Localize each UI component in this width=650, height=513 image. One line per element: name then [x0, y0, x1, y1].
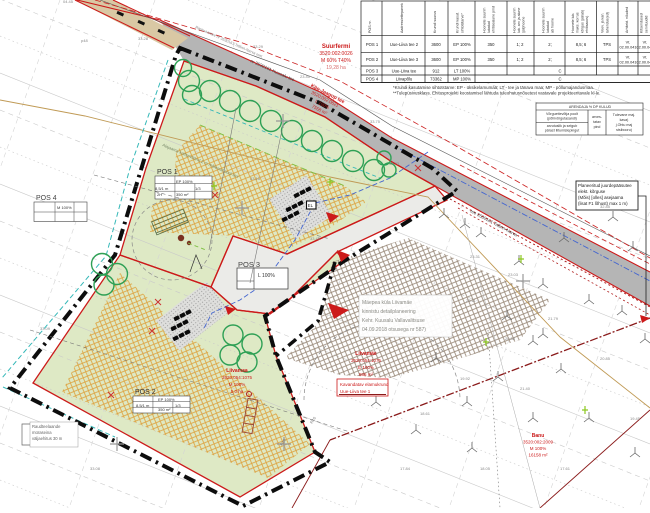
- svg-text:POS 1: POS 1: [157, 169, 178, 176]
- svg-text:19,28 ha: 19,28 ha: [326, 65, 346, 71]
- svg-text:lubatud: lubatud: [487, 21, 491, 33]
- svg-text:müraseina: müraseina: [32, 430, 52, 435]
- svg-text:C: C: [558, 69, 561, 74]
- svg-text:TPS: TPS: [603, 57, 611, 62]
- svg-text:19.92: 19.92: [460, 376, 471, 381]
- svg-text:Aadressiettepanek: Aadressiettepanek: [400, 3, 404, 33]
- svg-text:maks. korrus: maks. korrus: [576, 12, 580, 33]
- svg-text:73362: 73362: [430, 77, 442, 82]
- svg-text:(Mõis) [olles] asejaama: (Mõis) [olles] asejaama: [578, 195, 624, 200]
- svg-text:20.85: 20.85: [600, 356, 611, 361]
- svg-text:33.73: 33.73: [389, 161, 400, 166]
- svg-text:18.05: 18.05: [480, 466, 491, 471]
- svg-text:Hoonete suurim: Hoonete suurim: [482, 8, 486, 33]
- svg-text:Hoonete suurim: Hoonete suurim: [512, 8, 516, 33]
- svg-text:02.00.041: 02.00.041: [620, 61, 637, 65]
- svg-text:18.61: 18.61: [420, 411, 431, 416]
- svg-text:Veev. ja kan.: Veev. ja kan.: [601, 13, 605, 33]
- svg-text:Raudteelaande: Raudteelaande: [32, 424, 61, 429]
- svg-text:33.29: 33.29: [253, 44, 264, 49]
- svg-text:POS nr.: POS nr.: [368, 20, 372, 33]
- svg-text:32.85: 32.85: [600, 204, 611, 209]
- svg-text:2;: 2;: [548, 57, 552, 62]
- svg-text:lub. arv ja alune: lub. arv ja alune: [517, 8, 521, 33]
- svg-text:Krundi kasut.: Krundi kasut.: [456, 12, 460, 33]
- svg-text:912: 912: [433, 69, 441, 74]
- svg-text:23.31: 23.31: [470, 254, 481, 259]
- svg-text:33.28: 33.28: [138, 36, 149, 41]
- svg-text:EL: EL: [308, 203, 314, 208]
- svg-text:1/3: 1/3: [195, 186, 201, 191]
- svg-text:8,5; 6: 8,5; 6: [576, 42, 587, 47]
- svg-text:8,5; 6: 8,5; 6: [576, 57, 587, 62]
- svg-text:2H: 2H: [157, 192, 162, 197]
- svg-text:M 100%: M 100%: [229, 382, 246, 387]
- svg-text:väljaehitus 30 m: väljaehitus 30 m: [32, 436, 63, 441]
- svg-text:Võrguettevõtja poolt: Võrguettevõtja poolt: [546, 112, 578, 116]
- svg-text:1; 2: 1; 2: [517, 42, 525, 47]
- svg-text:04.09.2018 otsusega nr 587): 04.09.2018 otsusega nr 587): [362, 327, 426, 333]
- svg-text:sihtotstarve*: sihtotstarve*: [460, 13, 464, 33]
- svg-text:arvutuslik ja selgub: arvutuslik ja selgub: [547, 124, 578, 128]
- svg-text:33.75: 33.75: [370, 119, 381, 124]
- svg-text:8,5/1 m: 8,5/1 m: [155, 186, 169, 191]
- svg-text:servituudid: servituudid: [644, 16, 648, 33]
- svg-text:EP 100%: EP 100%: [453, 42, 471, 47]
- svg-text:Kavandatav elamukrund: Kavandatav elamukrund: [340, 382, 389, 387]
- svg-text:16158 m²: 16158 m²: [528, 453, 548, 458]
- svg-text:Vt.: Vt.: [626, 56, 631, 60]
- svg-text:21.40: 21.40: [520, 386, 531, 391]
- svg-text:p48: p48: [81, 38, 88, 43]
- svg-text:19.45: 19.45: [630, 416, 641, 421]
- svg-text:L 100%: L 100%: [258, 273, 275, 279]
- svg-text:MP 100%: MP 100%: [453, 77, 471, 82]
- svg-text:elekt. kõrguse: elekt. kõrguse: [578, 189, 606, 194]
- svg-text:arves-: arves-: [592, 115, 603, 119]
- svg-text:kinnistu detailplaneering: kinnistu detailplaneering: [362, 309, 416, 315]
- svg-text:3520:002:2009: 3520:002:2009: [523, 440, 554, 445]
- svg-text:Banu: Banu: [532, 433, 545, 439]
- svg-text:8,5/1 m: 8,5/1 m: [136, 403, 150, 408]
- svg-text:kõrgus (pä/ab): kõrgus (pä/ab): [580, 10, 584, 33]
- svg-text:(põhivõrgutasandi): (põhivõrgutasandi): [547, 117, 577, 121]
- svg-text:Mäepea küla Liivamäe: Mäepea küla Liivamäe: [362, 300, 412, 306]
- svg-text:EP 100%: EP 100%: [453, 57, 471, 62]
- svg-text:350 m²: 350 m²: [158, 407, 171, 412]
- svg-text:ehitisealune pind: ehitisealune pind: [492, 6, 496, 33]
- svg-text:POS 2: POS 2: [366, 57, 379, 62]
- svg-text:POS 4: POS 4: [36, 195, 57, 202]
- svg-text:33.09: 33.09: [40, 326, 51, 331]
- svg-text:350: 350: [488, 57, 496, 62]
- svg-text:33.08: 33.08: [90, 466, 101, 471]
- svg-text:Uue-Liiva tee 3: Uue-Liiva tee 3: [390, 57, 419, 62]
- svg-text:23.11: 23.11: [466, 298, 476, 303]
- svg-text:Uue-Liiva tee 2: Uue-Liiva tee 2: [390, 42, 419, 47]
- svg-text:lubatud: lubatud: [546, 21, 550, 33]
- svg-text:ARENDAJA % DP KULUD: ARENDAJA % DP KULUD: [569, 105, 612, 109]
- svg-text:Krundi suurus: Krundi suurus: [433, 11, 437, 33]
- svg-text:(pä)hoone: (pä)hoone: [522, 17, 526, 33]
- svg-text:20.38: 20.38: [505, 336, 516, 341]
- svg-text:Liivapõlu: Liivapõlu: [396, 77, 413, 82]
- svg-text:33.15: 33.15: [250, 176, 261, 181]
- svg-text:POS 3: POS 3: [366, 69, 379, 74]
- svg-text:Arhitekt. nõuded: Arhitekt. nõuded: [625, 7, 629, 33]
- svg-text:Hoonete suurim: Hoonete suurim: [541, 8, 545, 33]
- svg-text:02.00.041: 02.00.041: [637, 61, 650, 65]
- svg-text:kava): kava): [620, 118, 629, 122]
- svg-text:Uue-Liiva tee: Uue-Liiva tee: [392, 69, 417, 74]
- svg-text:17.61: 17.61: [560, 466, 571, 471]
- svg-text:j.Ohtu maj: j.Ohtu maj: [615, 123, 633, 127]
- svg-text:02.00.041: 02.00.041: [620, 46, 637, 50]
- svg-text:stsibooru): stsibooru): [616, 128, 632, 132]
- svg-text:17.84: 17.84: [400, 466, 411, 471]
- svg-text:21.79: 21.79: [548, 316, 559, 321]
- svg-text:Liivamäe: Liivamäe: [355, 351, 377, 357]
- svg-text:POS 2: POS 2: [135, 389, 156, 396]
- svg-text:Hoonete lub.: Hoonete lub.: [571, 13, 575, 33]
- svg-text:lahendus(ed): lahendus(ed): [605, 12, 609, 33]
- svg-text:**Tulepüsivusklass. Ehitusproj: **Tulepüsivusklass. Ehitusprojekti koost…: [393, 91, 601, 96]
- svg-text:33.45: 33.45: [310, 236, 321, 241]
- svg-text:3520:002:0026: 3520:002:0026: [319, 51, 353, 57]
- svg-text:5,0 ha: 5,0 ha: [231, 389, 244, 394]
- svg-text:3520:054:1075: 3520:054:1075: [351, 358, 382, 363]
- svg-text:Suurfermi: Suurfermi: [322, 44, 351, 50]
- svg-text:23.03: 23.03: [508, 272, 519, 277]
- svg-text:Kehr. Kuusalu Vallavalitsuse: Kehr. Kuusalu Vallavalitsuse: [362, 318, 425, 324]
- svg-text:2;: 2;: [548, 42, 552, 47]
- svg-text:*Krundi kasutamise sihtotstarv: *Krundi kasutamise sihtotstarve: EP - ük…: [393, 85, 594, 90]
- svg-text:LT 100%: LT 100%: [454, 69, 471, 74]
- svg-text:23.40: 23.40: [300, 74, 311, 79]
- svg-text:ab hoone: ab hoone: [551, 18, 555, 33]
- svg-text:M 100%: M 100%: [530, 446, 547, 451]
- svg-text:Kitsendused: Kitsendused: [640, 13, 644, 33]
- svg-text:M 60% T40%: M 60% T40%: [321, 58, 351, 64]
- svg-text:3600: 3600: [431, 42, 441, 47]
- svg-text:POS 4: POS 4: [366, 77, 379, 82]
- svg-text:1/3: 1/3: [175, 403, 181, 408]
- svg-text:3600: 3600: [431, 57, 441, 62]
- svg-text:Liivamaa: Liivamaa: [226, 368, 248, 374]
- svg-text:Tulevane maj.: Tulevane maj.: [613, 113, 635, 117]
- svg-text:Planeeritud juurdepääsutee: Planeeritud juurdepääsutee: [578, 183, 632, 188]
- svg-text:350: 350: [488, 42, 496, 47]
- svg-text:02.00.041: 02.00.041: [637, 46, 650, 50]
- svg-text:ehitisaoov): ehitisaoov): [585, 16, 589, 33]
- svg-text:M 100%: M 100%: [57, 205, 72, 210]
- svg-text:tatav: tatav: [593, 120, 601, 124]
- svg-text:04.45: 04.45: [63, 0, 74, 4]
- svg-text:TPS: TPS: [603, 42, 611, 47]
- svg-text:Vt.: Vt.: [643, 41, 648, 45]
- svg-text:Uue-Liiva tee 1: Uue-Liiva tee 1: [340, 389, 371, 394]
- svg-text:POS 3: POS 3: [238, 260, 260, 269]
- svg-text:pind: pind: [594, 125, 601, 129]
- svg-text:POS 1: POS 1: [366, 42, 379, 47]
- svg-text:350 m²: 350 m²: [176, 192, 189, 197]
- svg-text:Vt.: Vt.: [626, 41, 631, 45]
- svg-text:pärast liitumislepingut: pärast liitumislepingut: [545, 129, 580, 133]
- svg-text:C: C: [558, 77, 561, 82]
- svg-text:1; 2: 1; 2: [517, 57, 525, 62]
- svg-text:EP 100%: EP 100%: [158, 397, 175, 402]
- svg-text:EP 100%: EP 100%: [176, 179, 193, 184]
- svg-text:886 m²: 886 m²: [359, 372, 374, 377]
- svg-text:E 100%: E 100%: [358, 365, 374, 370]
- svg-text:3520:054:1075: 3520:054:1075: [222, 375, 253, 380]
- svg-text:Vt.: Vt.: [643, 56, 648, 60]
